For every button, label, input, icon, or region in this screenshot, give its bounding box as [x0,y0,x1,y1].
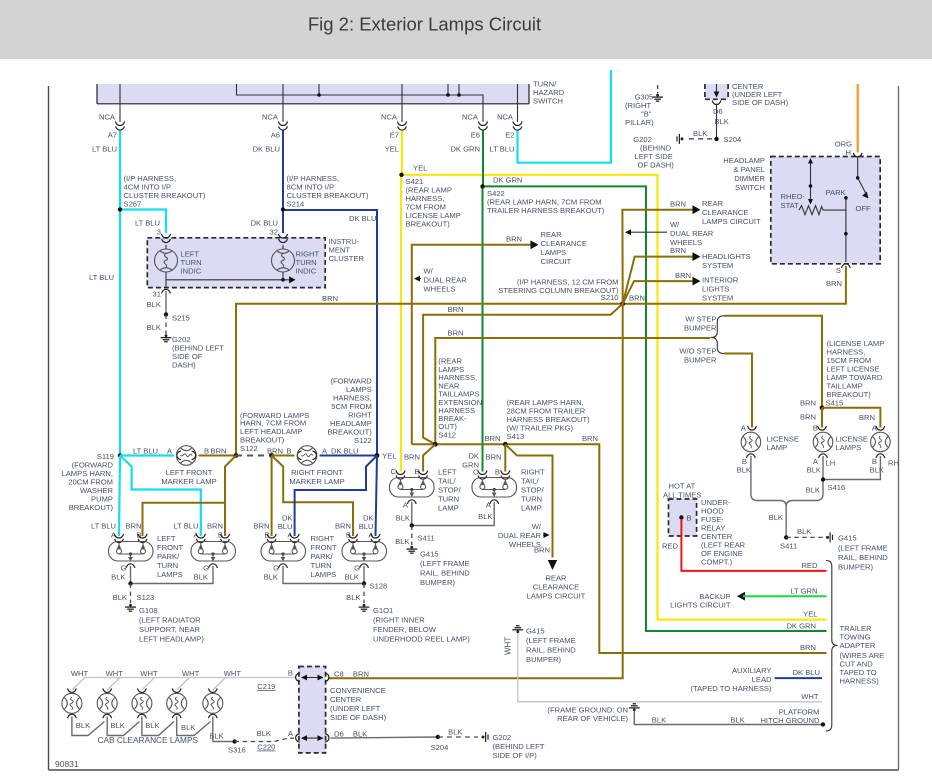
svg-text:TURN: TURN [521,495,542,504]
svg-text:W/: W/ [424,267,434,276]
svg-text:HOT AT: HOT AT [669,482,696,491]
svg-text:RHEO-: RHEO- [781,192,806,201]
svg-text:DIMMER: DIMMER [734,174,765,183]
svg-text:CLEARANCE: CLEARANCE [533,583,579,592]
svg-text:BREAKOUT): BREAKOUT) [406,220,451,229]
svg-text:REAR OF VEHICLE): REAR OF VEHICLE) [557,714,628,723]
svg-text:BRN: BRN [207,522,223,531]
svg-text:S204: S204 [431,743,449,752]
svg-text:WHT: WHT [182,669,200,678]
svg-text:STEERING COLUMN BREAKOUT): STEERING COLUMN BREAKOUT) [498,286,619,295]
svg-text:32: 32 [270,228,278,237]
svg-text:LEFT HEADLAMP): LEFT HEADLAMP) [139,635,204,644]
svg-text:S123: S123 [137,593,155,602]
svg-text:W/O STEP: W/O STEP [679,347,716,356]
svg-text:RAIL, BEHIND: RAIL, BEHIND [526,646,576,655]
svg-text:LAMP: LAMP [521,504,542,513]
svg-text:CLUSTER: CLUSTER [329,254,365,263]
svg-text:RIGHT FRONT: RIGHT FRONT [291,468,343,477]
svg-text:BLK: BLK [147,300,161,309]
svg-text:BLK: BLK [257,729,271,738]
svg-text:(LEFT RADIATOR: (LEFT RADIATOR [139,616,201,625]
svg-text:RIGHT: RIGHT [311,534,335,543]
svg-text:HARN, 7CM FROM: HARN, 7CM FROM [240,419,306,428]
svg-text:LT BLU: LT BLU [92,145,117,154]
svg-text:PARK/: PARK/ [157,552,180,561]
svg-text:INDIC: INDIC [296,267,317,276]
svg-text:SWITCH: SWITCH [533,96,563,105]
svg-text:CLEARANCE: CLEARANCE [702,208,748,217]
svg-text:LEAD: LEAD [752,675,772,684]
svg-text:COMPT.): COMPT.) [701,558,733,567]
svg-text:LAMPS: LAMPS [157,570,183,579]
svg-text:CONVENIENCE: CONVENIENCE [330,686,386,695]
svg-text:BLK: BLK [181,723,195,732]
svg-text:BRN: BRN [826,279,842,288]
svg-text:B: B [288,669,293,678]
svg-text:STAT: STAT [781,201,800,210]
svg-text:BREAKOUT): BREAKOUT) [69,503,114,512]
svg-text:S204: S204 [724,135,742,144]
svg-text:S267: S267 [124,200,142,209]
svg-text:90831: 90831 [55,759,79,769]
svg-text:BLK: BLK [113,593,127,602]
svg-text:DUAL REAR: DUAL REAR [498,531,542,540]
svg-text:BRN: BRN [506,235,522,244]
svg-text:BLK: BLK [396,514,410,523]
svg-text:G: G [203,564,209,573]
svg-text:BRN: BRN [670,246,686,255]
svg-text:NCA: NCA [462,113,479,122]
svg-text:NCA: NCA [381,113,398,122]
svg-text:BRN: BRN [629,294,645,303]
svg-text:B: B [813,424,818,433]
svg-text:TAIL/: TAIL/ [521,477,539,486]
svg-text:C219: C219 [257,682,275,691]
svg-text:S: S [836,266,841,275]
svg-text:TURN: TURN [157,561,178,570]
svg-text:WHEELS: WHEELS [509,540,541,549]
svg-text:CAB CLEARANCE LAMPS: CAB CLEARANCE LAMPS [98,735,199,745]
svg-text:S316: S316 [228,746,246,755]
svg-text:YEL: YEL [803,610,817,619]
svg-text:FENDER, BELOW: FENDER, BELOW [373,625,437,634]
svg-text:LIGHTS: LIGHTS [702,285,729,294]
svg-text:Fig 2: Exterior Lamps Circuit: Fig 2: Exterior Lamps Circuit [308,14,541,35]
svg-text:BRN: BRN [404,453,420,462]
svg-text:CENTER: CENTER [330,695,362,704]
svg-text:PARK/: PARK/ [311,552,334,561]
svg-text:BLK: BLK [395,537,409,546]
svg-text:DUAL REAR: DUAL REAR [424,276,468,285]
svg-text:BRN: BRN [800,413,816,422]
svg-text:(BEHIND LEFT: (BEHIND LEFT [493,742,545,751]
svg-text:G415: G415 [838,534,857,543]
svg-text:G: G [354,564,360,573]
svg-text:BUMPER: BUMPER [684,324,717,333]
svg-text:PILLAR): PILLAR) [625,118,654,127]
svg-text:3: 3 [157,228,161,237]
svg-text:BLK: BLK [807,466,821,475]
svg-text:CLEARANCE: CLEARANCE [541,239,587,248]
svg-text:BLK: BLK [147,323,161,332]
svg-text:C: C [391,467,397,476]
svg-text:D6: D6 [713,107,723,116]
svg-text:REAR: REAR [545,574,567,583]
svg-text:BLK: BLK [478,512,492,521]
svg-text:LT BLU: LT BLU [89,273,114,282]
svg-text:(LEFT FRAME: (LEFT FRAME [420,559,470,568]
svg-text:DK GRN: DK GRN [493,176,523,185]
svg-text:OFF: OFF [856,204,872,213]
svg-text:DK GRN: DK GRN [450,145,480,154]
svg-text:WHT: WHT [504,637,513,655]
svg-text:LT GRN: LT GRN [790,587,817,596]
svg-text:WHT: WHT [224,669,242,678]
svg-text:BLK: BLK [870,466,884,475]
svg-text:G415: G415 [420,550,439,559]
svg-text:S411: S411 [418,534,435,543]
svg-text:E7: E7 [390,131,399,140]
svg-text:C220: C220 [257,743,275,752]
svg-text:WHT: WHT [801,692,819,701]
svg-text:G1O1: G1O1 [373,606,393,615]
svg-text:LH: LH [826,459,836,468]
svg-text:INTERIOR: INTERIOR [702,276,739,285]
svg-text:BRN: BRN [859,413,875,422]
svg-text:BRN: BRN [253,522,269,531]
svg-text:BLK: BLK [209,732,223,741]
svg-text:BRN: BRN [322,294,338,303]
svg-text:BLK: BLK [145,721,159,730]
svg-text:LAMPS CIRCUIT: LAMPS CIRCUIT [527,592,586,601]
svg-text:BRN: BRN [800,643,816,652]
svg-text:CIRCUIT: CIRCUIT [541,257,572,266]
svg-text:YEL: YEL [385,145,399,154]
svg-text:S411: S411 [780,542,797,551]
svg-text:SWITCH: SWITCH [735,183,765,192]
svg-text:LAMPS: LAMPS [541,248,567,257]
svg-text:WHEELS: WHEELS [424,285,456,294]
svg-text:UNDERHOOD REEL LAMP): UNDERHOOD REEL LAMP) [373,635,470,644]
svg-text:B: B [687,514,692,523]
svg-text:BLK: BLK [346,593,360,602]
svg-text:MARKER LAMP: MARKER LAMP [161,477,216,486]
svg-text:S122: S122 [240,444,258,453]
svg-text:HEADLIGHTS: HEADLIGHTS [702,252,751,261]
svg-text:BLK: BLK [345,573,359,582]
svg-text:PARK: PARK [826,188,846,197]
svg-text:BRN: BRN [448,305,464,314]
svg-text:BRN: BRN [484,434,500,443]
svg-text:B: B [286,447,291,456]
svg-text:BUMPER): BUMPER) [420,578,455,587]
svg-text:(LEFT FRAME: (LEFT FRAME [526,636,576,645]
svg-text:SYSTEM: SYSTEM [702,261,733,270]
svg-text:MARKER LAMP: MARKER LAMP [289,477,344,486]
svg-text:TURN: TURN [438,495,459,504]
svg-text:BLK: BLK [769,513,783,522]
svg-text:E6: E6 [471,131,480,140]
svg-text:B: B [495,468,500,477]
svg-text:S416: S416 [828,483,846,492]
svg-text:RAIL, BEHIND: RAIL, BEHIND [838,553,888,562]
svg-text:D6: D6 [334,730,344,739]
svg-text:DK BLU: DK BLU [793,668,820,677]
svg-text:G202: G202 [493,733,512,742]
svg-text:BRN: BRN [125,522,141,531]
svg-text:LAMPS: LAMPS [836,443,862,452]
svg-text:G415: G415 [526,627,545,636]
svg-text:RED: RED [662,542,679,551]
svg-text:(RIGHT INNER: (RIGHT INNER [373,616,425,625]
svg-text:BLK: BLK [111,573,125,582]
svg-text:S128: S128 [370,582,388,591]
svg-text:INDIC: INDIC [181,267,202,276]
svg-text:HARNESS): HARNESS) [840,677,880,686]
svg-text:S413: S413 [507,432,525,441]
svg-text:(TAPED TO HARNESS): (TAPED TO HARNESS) [690,684,771,693]
svg-text:LT BLU: LT BLU [133,447,158,456]
svg-text:DK GRN: DK GRN [786,622,816,631]
svg-text:BLK: BLK [448,728,462,737]
svg-text:BLK: BLK [76,721,90,730]
svg-text:BUMPER): BUMPER) [838,563,873,572]
svg-text:LEFT: LEFT [438,468,457,477]
svg-text:A6: A6 [271,131,280,140]
svg-text:S412: S412 [438,430,456,439]
svg-text:DK BLU: DK BLU [253,145,280,154]
svg-text:RIGHT: RIGHT [521,468,545,477]
svg-text:LAMPS CIRCUIT: LAMPS CIRCUIT [702,217,761,226]
svg-text:BRN: BRN [267,447,283,456]
svg-text:BRN: BRN [675,271,691,280]
svg-text:RH: RH [888,459,899,468]
svg-text:(LEFT FRAME: (LEFT FRAME [838,544,888,553]
svg-text:S122: S122 [354,436,372,445]
svg-text:BRN: BRN [670,200,686,209]
svg-text:NCA: NCA [262,113,279,122]
svg-text:WHT: WHT [140,669,158,678]
svg-text:SIDE OF DASH): SIDE OF DASH) [330,713,387,722]
svg-text:(UNDER LEFT: (UNDER LEFT [330,704,381,713]
svg-text:G: G [273,564,279,573]
svg-text:W/: W/ [670,220,680,229]
svg-text:RED: RED [801,561,818,570]
svg-text:DK: DK [468,452,479,461]
svg-text:BLK: BLK [693,129,707,138]
svg-text:LT BLU: LT BLU [489,145,514,154]
svg-text:LT BLU: LT BLU [173,522,198,531]
svg-text:BLK: BLK [194,573,208,582]
svg-text:REAR: REAR [702,199,724,208]
svg-text:HEADLAMP: HEADLAMP [723,156,765,165]
svg-text:BLK: BLK [737,466,751,475]
svg-text:LAMPS: LAMPS [311,570,337,579]
svg-text:& PANEL: & PANEL [733,165,765,174]
svg-text:ADAPTER: ADAPTER [840,641,876,650]
svg-text:YEL: YEL [413,164,427,173]
svg-text:LEFT: LEFT [157,534,176,543]
svg-text:FRONT: FRONT [311,543,338,552]
svg-text:YEL: YEL [382,452,396,461]
svg-text:GRN: GRN [462,461,479,470]
svg-text:BRN: BRN [582,434,598,443]
svg-text:BLK: BLK [715,117,729,126]
svg-text:NCA: NCA [497,113,514,122]
svg-text:DASH): DASH) [172,361,196,370]
svg-text:LT BLU: LT BLU [135,219,160,228]
svg-text:S415: S415 [826,399,844,408]
svg-text:STOP/: STOP/ [521,486,545,495]
svg-text:A7: A7 [108,131,117,140]
svg-text:WHT: WHT [71,669,89,678]
svg-text:BLK: BLK [264,573,278,582]
svg-text:31: 31 [153,290,161,299]
svg-text:G108: G108 [139,606,158,615]
svg-text:BRN: BRN [485,453,501,462]
svg-text:SIDE OF DASH): SIDE OF DASH) [732,98,789,107]
svg-text:LIGHTS CIRCUIT: LIGHTS CIRCUIT [670,601,731,610]
svg-text:E2: E2 [505,131,514,140]
svg-text:BUMPER): BUMPER) [526,655,561,664]
svg-text:BLK: BLK [806,486,820,495]
svg-text:TAIL/: TAIL/ [438,477,456,486]
svg-text:LT BLU: LT BLU [91,522,116,531]
svg-text:B: B [204,447,209,456]
svg-text:BLK: BLK [111,721,125,730]
svg-text:DK BLU: DK BLU [349,214,376,223]
svg-text:S215: S215 [172,314,190,323]
svg-text:SIDE OF I/P): SIDE OF I/P) [493,751,538,760]
svg-text:SUPPORT, NEAR: SUPPORT, NEAR [139,625,201,634]
svg-text:W/ STEP: W/ STEP [685,315,716,324]
svg-text:BRN: BRN [335,522,351,531]
svg-text:AUXILIARY: AUXILIARY [732,666,772,675]
svg-text:BRN: BRN [800,399,816,408]
svg-text:REAR: REAR [541,230,563,239]
svg-text:BRN: BRN [448,329,464,338]
svg-text:S214: S214 [287,200,305,209]
svg-text:C8: C8 [334,670,344,679]
svg-text:BRN: BRN [353,670,369,679]
svg-text:TRAILER HARNESS BREAKOUT): TRAILER HARNESS BREAKOUT) [487,206,605,215]
svg-text:LAMP: LAMP [767,443,788,452]
svg-text:BRN: BRN [211,447,227,456]
svg-text:BLK: BLK [730,716,744,725]
svg-text:W/: W/ [532,522,542,531]
svg-text:LEFT FRONT: LEFT FRONT [166,468,213,477]
svg-text:SYSTEM: SYSTEM [702,294,733,303]
svg-text:DK BLU: DK BLU [251,219,278,228]
svg-text:BLK: BLK [797,527,811,536]
svg-text:WHT: WHT [106,669,124,678]
svg-text:OF DASH): OF DASH) [638,161,675,170]
svg-text:LAMP: LAMP [438,504,459,513]
svg-text:FRONT: FRONT [157,543,184,552]
svg-text:G: G [121,564,127,573]
svg-text:BUMPER: BUMPER [684,356,717,365]
svg-text:B: B [414,467,419,476]
svg-text:HITCH GROUND: HITCH GROUND [760,716,820,725]
svg-text:BLK: BLK [652,716,666,725]
svg-text:DK BLU: DK BLU [331,447,358,456]
svg-text:TURN: TURN [311,561,332,570]
svg-text:NCA: NCA [99,113,116,122]
svg-text:STOP/: STOP/ [438,486,462,495]
svg-text:DUAL REAR: DUAL REAR [670,229,714,238]
svg-text:RAIL, BEHIND: RAIL, BEHIND [420,569,470,578]
